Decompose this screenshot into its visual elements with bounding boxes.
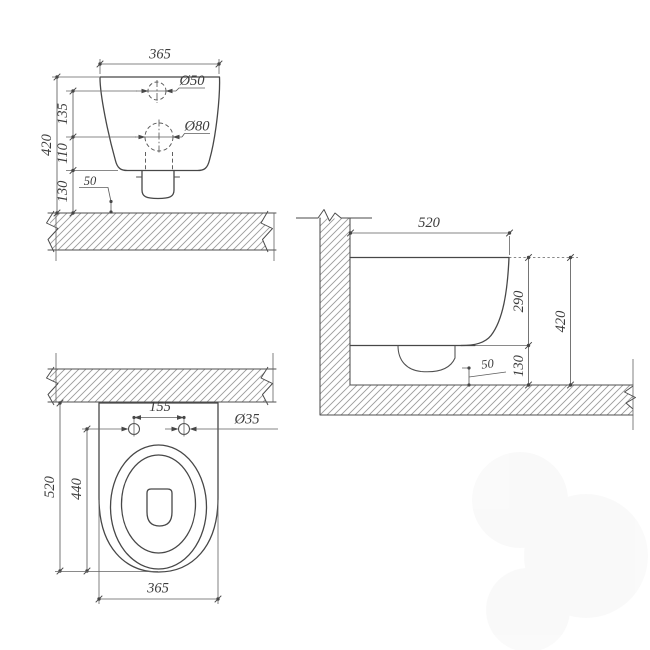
toilet-technical-drawing: Ø50 Ø80 365 135 110	[0, 0, 650, 650]
front-offset-label: 50	[84, 174, 97, 188]
bolt-dia-label: Ø35	[234, 412, 260, 428]
side-depth-dimension: 520	[347, 215, 513, 255]
front-height-dimensions: 135 110 130 420	[39, 74, 137, 217]
side-total-height-label: 420	[553, 310, 569, 333]
side-body-front-curve	[461, 258, 509, 346]
watermark	[472, 452, 648, 650]
floor-gap-label: 130	[511, 354, 527, 377]
plan-depth-dimensions: 440 520	[42, 400, 158, 575]
drain-dia-label: Ø80	[184, 119, 211, 135]
seg-110-label: 110	[55, 142, 71, 163]
inner-depth-label: 440	[69, 477, 85, 500]
front-width-dimension: 365	[97, 47, 223, 75]
bowl-inner-rim	[122, 455, 196, 553]
side-depth-label: 520	[418, 215, 441, 231]
seg-135-label: 135	[55, 103, 71, 125]
bolt-dia-callout: Ø35	[165, 412, 278, 432]
inlet-dia-label: Ø50	[179, 73, 206, 89]
front-width-label: 365	[148, 47, 171, 63]
technical-drawing-page: Ø50 Ø80 365 135 110	[0, 0, 650, 650]
drain-channel-hidden-lines	[146, 152, 173, 171]
seg-130-label: 130	[55, 180, 71, 203]
front-height-label: 420	[39, 133, 55, 156]
front-outlet-offset-leader: 50	[79, 174, 113, 214]
plan-body-outline	[99, 403, 218, 572]
top-wall-section	[40, 353, 282, 405]
mounting-holes	[129, 418, 190, 437]
side-offset-label: 50	[480, 356, 495, 372]
plan-drain-hole	[147, 489, 172, 526]
side-trap-outlet	[398, 346, 455, 372]
front-view: Ø50 Ø80 365 135 110	[39, 47, 282, 262]
side-height-dimensions: 290 130 420	[511, 254, 574, 388]
seat-outer-rim	[111, 445, 207, 569]
bolt-spacing-label: 155	[149, 399, 171, 415]
drain-hole-dashed-circle: Ø80	[135, 119, 210, 171]
side-body	[350, 258, 529, 372]
plan-depth-label: 520	[42, 475, 58, 498]
side-view: 520 290 130 420 50	[296, 210, 641, 431]
plan-width-label: 365	[146, 581, 169, 597]
front-floor-section	[40, 211, 282, 261]
front-outlet-spigot	[142, 171, 174, 199]
body-height-label: 290	[511, 290, 527, 313]
wall-floor-outline	[320, 218, 633, 415]
side-wall-floor-section	[296, 210, 641, 431]
side-outlet-offset-leader: 50	[462, 356, 506, 386]
top-view: 155 Ø35 440 520 365	[40, 353, 282, 604]
